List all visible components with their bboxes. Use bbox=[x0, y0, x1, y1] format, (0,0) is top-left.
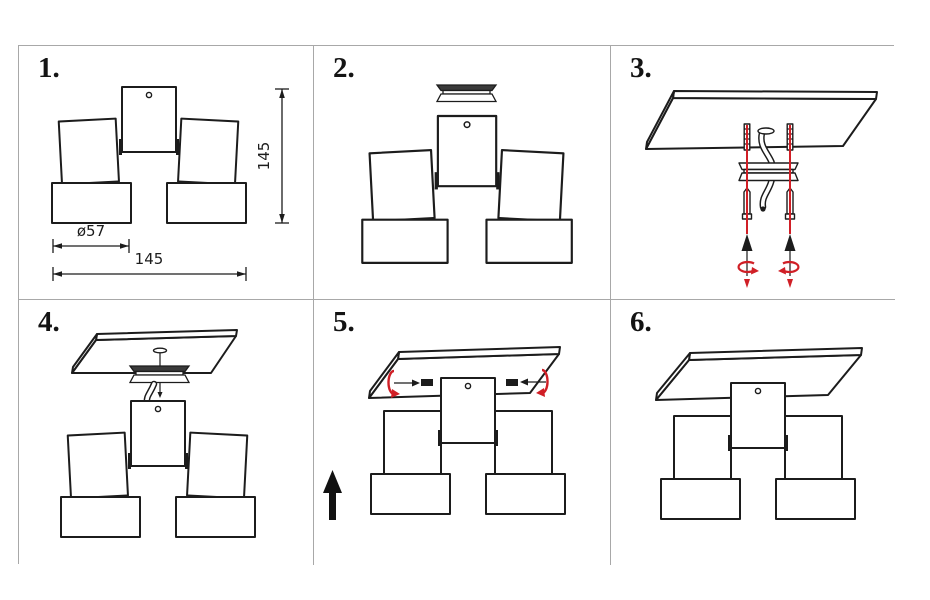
cable-cap bbox=[758, 128, 774, 134]
step-6-drawing bbox=[611, 300, 895, 565]
screw-head-right bbox=[506, 379, 518, 386]
rotate-arrow-left bbox=[739, 262, 759, 275]
dimension-overall-width: 145 bbox=[53, 250, 246, 281]
panel-step-2: 2. bbox=[314, 46, 611, 300]
step-5-drawing bbox=[314, 300, 611, 565]
panel-step-5: 5. bbox=[314, 300, 611, 565]
panel-step-4: 4. bbox=[19, 300, 314, 565]
svg-text:145: 145 bbox=[255, 142, 273, 171]
insert-arrow-right bbox=[785, 234, 796, 276]
rotate-arrow-right bbox=[778, 262, 798, 275]
panel-step-6: 6. bbox=[611, 300, 895, 565]
step-1-drawing: ø57 145 145 bbox=[19, 46, 314, 300]
red-tip-right bbox=[787, 279, 793, 288]
screw-head-left bbox=[421, 379, 433, 386]
panel-step-3: 3. bbox=[611, 46, 895, 300]
svg-text:ø57: ø57 bbox=[77, 222, 105, 240]
red-tip-left bbox=[744, 279, 750, 288]
step-4-drawing bbox=[19, 300, 314, 565]
fixing-screw-bottom bbox=[158, 383, 163, 398]
dimension-overall-height: 145 bbox=[255, 89, 289, 223]
instruction-grid: 1. ø57 14 bbox=[18, 45, 894, 564]
step-2-drawing bbox=[314, 46, 611, 300]
instruction-sheet: 1. ø57 14 bbox=[0, 0, 930, 600]
insert-arrow-left bbox=[742, 234, 753, 276]
svg-text:145: 145 bbox=[135, 250, 164, 268]
lift-up-arrow bbox=[323, 470, 342, 520]
dimension-shade-diameter: ø57 bbox=[53, 222, 129, 253]
panel-step-1: 1. ø57 14 bbox=[19, 46, 314, 300]
step-3-drawing bbox=[611, 46, 895, 300]
